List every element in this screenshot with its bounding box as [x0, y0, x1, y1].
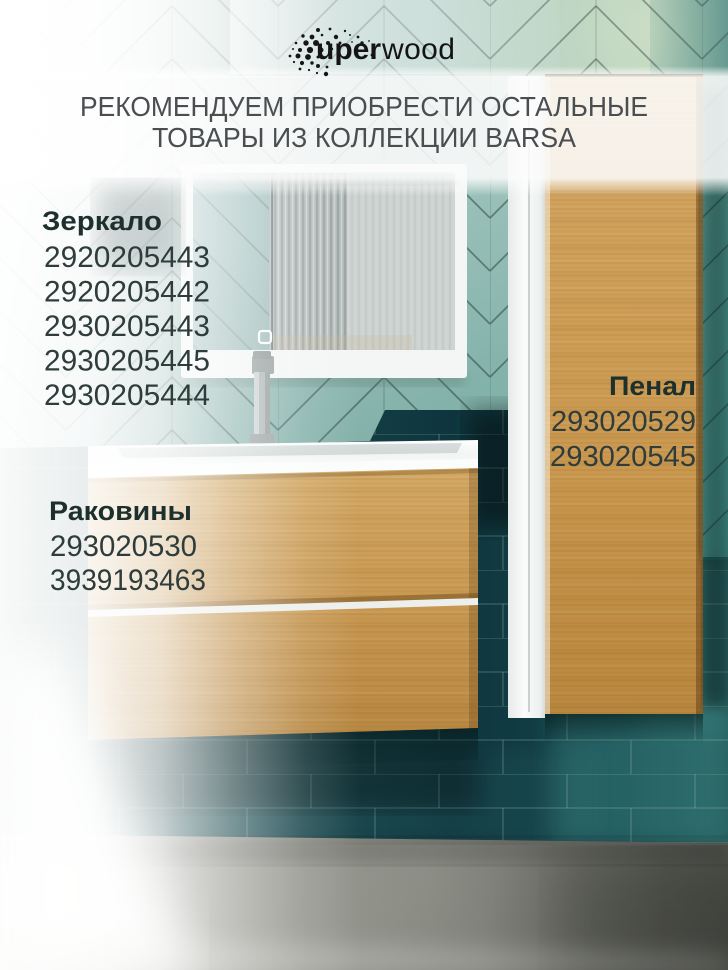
svg-text:3939193463: 3939193463: [50, 564, 206, 597]
svg-text:Пенал: Пенал: [609, 371, 696, 401]
svg-text:2930205444: 2930205444: [44, 379, 210, 412]
svg-text:2920205443: 2920205443: [44, 241, 210, 274]
svg-text:2930205443: 2930205443: [44, 310, 210, 343]
svg-text:Зеркало: Зеркало: [42, 206, 162, 236]
svg-text:293020530: 293020530: [50, 530, 197, 563]
svg-text:ТОВАРЫ ИЗ КОЛЛЕКЦИИ BARSA: ТОВАРЫ ИЗ КОЛЛЕКЦИИ BARSA: [152, 122, 576, 153]
svg-text:293020529: 293020529: [551, 406, 696, 438]
svg-text:2930205445: 2930205445: [44, 345, 210, 378]
svg-text:uperwood: uperwood: [316, 33, 455, 66]
svg-text:2920205442: 2920205442: [44, 276, 210, 309]
svg-text:Раковины: Раковины: [49, 496, 192, 526]
svg-text:РЕКОМЕНДУЕМ ПРИОБРЕСТИ ОСТАЛЬН: РЕКОМЕНДУЕМ ПРИОБРЕСТИ ОСТАЛЬНЫЕ: [80, 91, 648, 122]
svg-text:293020545: 293020545: [550, 441, 696, 473]
